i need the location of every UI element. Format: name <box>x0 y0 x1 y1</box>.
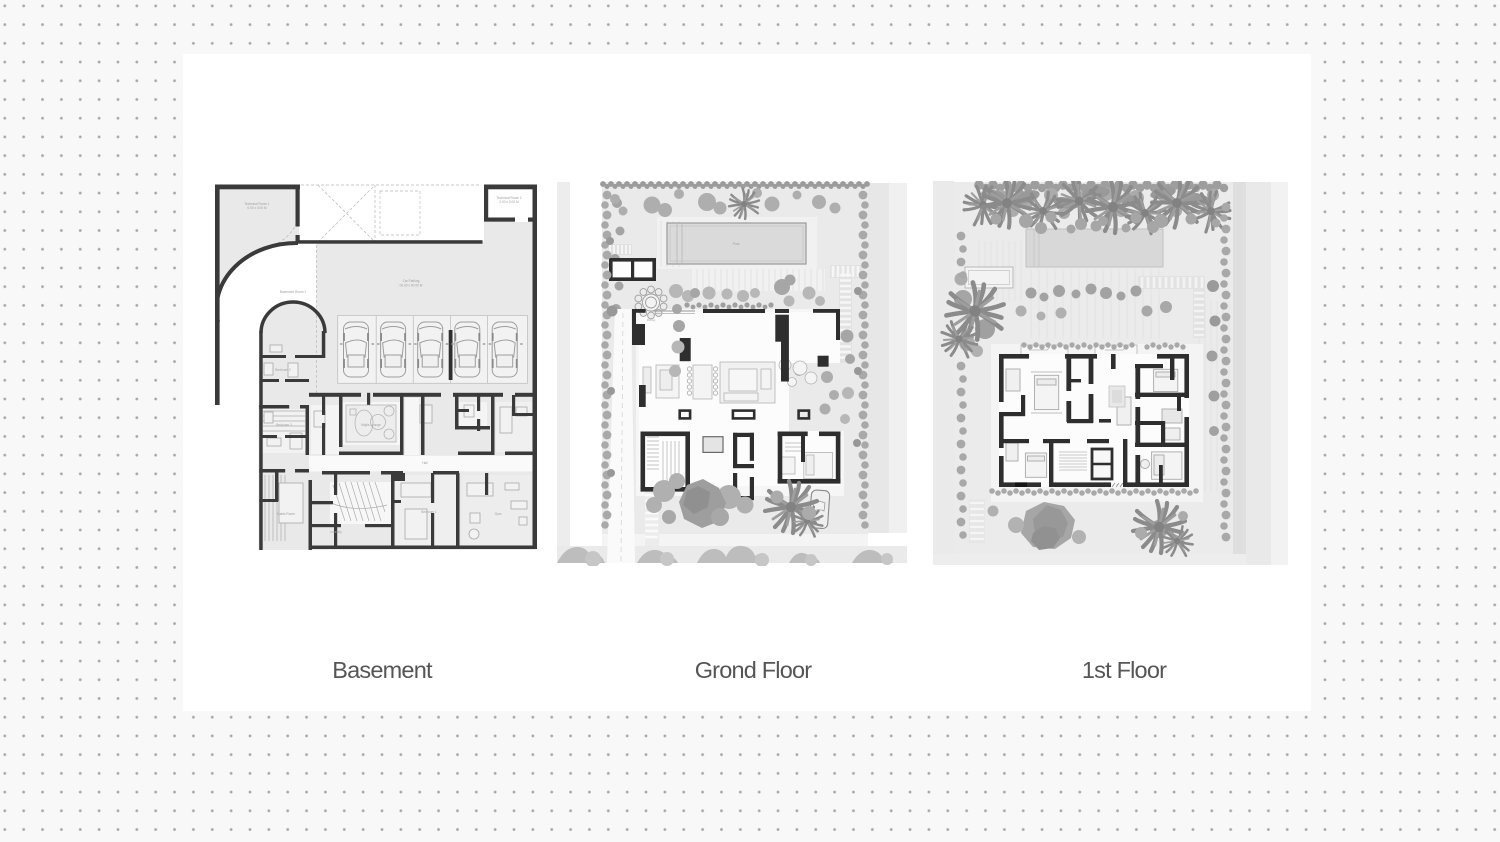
svg-text:0.00 x 0.00 M: 0.00 x 0.00 M <box>499 200 519 204</box>
svg-text:Bedroom 1: Bedroom 1 <box>421 510 437 514</box>
svg-text:Dining: Dining <box>647 318 656 322</box>
svg-text:Bedroom 3: Bedroom 3 <box>276 423 292 427</box>
svg-text:Laundry: Laundry <box>330 530 342 534</box>
svg-text:Bedroom 2: Bedroom 2 <box>275 368 291 372</box>
svg-text:Pool: Pool <box>733 242 740 246</box>
svg-text:Maids Room: Maids Room <box>277 512 295 516</box>
svg-text:Car Parking: Car Parking <box>403 279 420 283</box>
svg-text:Hall: Hall <box>422 461 428 465</box>
svg-text:Basement Room 1: Basement Room 1 <box>280 290 307 294</box>
svg-text:Majlis Lounge: Majlis Lounge <box>361 423 381 427</box>
svg-text:Gym: Gym <box>495 512 502 516</box>
svg-text:0.00 x 0.00 M: 0.00 x 0.00 M <box>247 206 267 210</box>
svg-text:00.00 x 00.00 M: 00.00 x 00.00 M <box>400 284 423 288</box>
